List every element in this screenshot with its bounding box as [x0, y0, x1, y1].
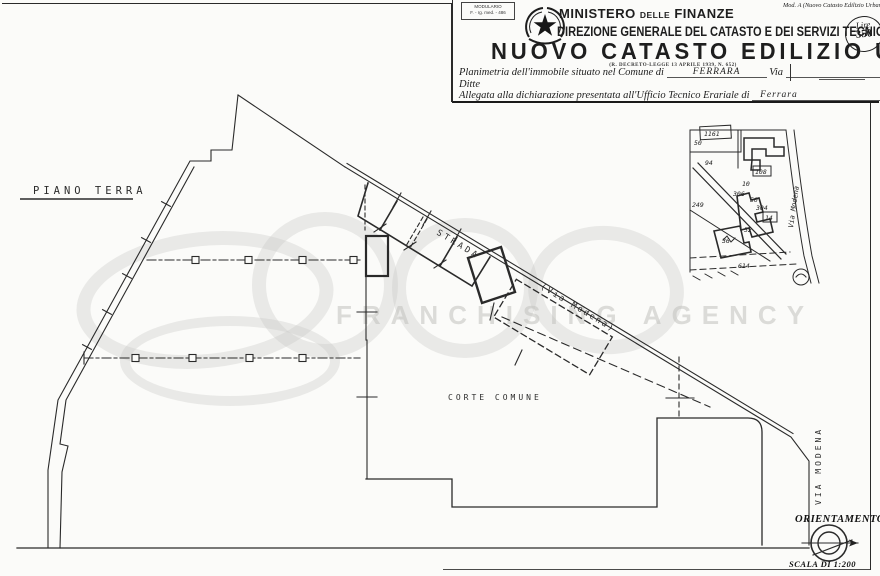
- cadastral-document-page: FRANCHISING AGENCY MODULARIO F. - rg. me…: [0, 0, 880, 576]
- road-edge-inner: [345, 167, 809, 545]
- compass-icon: [802, 525, 858, 561]
- parcel-number: 306: [732, 190, 745, 198]
- floor-label: PIANO TERRA: [33, 185, 147, 197]
- parcel-number: 304: [755, 204, 768, 212]
- central-building-column: [357, 185, 762, 545]
- parcel-number: 50: [750, 196, 758, 204]
- via-modena-vertical-label: VIA MODENA: [814, 427, 823, 505]
- fence-line-2: [84, 352, 360, 364]
- wall-ticks: [83, 202, 171, 350]
- parcel-top-boundary: [238, 95, 345, 167]
- inset-map: [690, 125, 819, 285]
- parcel-number: 14: [765, 214, 773, 222]
- parcel-number: 52: [744, 226, 752, 234]
- parcel-number: 249: [692, 201, 704, 209]
- orientamento-label: ORIENTAMENTO: [795, 514, 880, 525]
- fence-line-1: [147, 257, 363, 264]
- parcel-number: 614: [738, 262, 750, 270]
- parcel-number: 94: [705, 159, 713, 167]
- parcel-number: 10: [742, 180, 750, 188]
- building-solid-tick: [490, 303, 494, 320]
- parcel-number: 36: [721, 237, 730, 245]
- corte-comune-label: CORTE COMUNE: [448, 393, 542, 402]
- parcel-left-wall-outer: [48, 95, 238, 548]
- parcel-number: 1161: [704, 130, 720, 138]
- via-modena-road-label: (Via Modena): [538, 282, 616, 335]
- scala-label: SCALA DI 1:200: [789, 559, 856, 569]
- building-dashed-tick: [515, 350, 522, 365]
- road-buildings-band: [358, 183, 490, 286]
- parcel-number: 50: [694, 139, 702, 147]
- floor-plan-drawing: PIANO TERRA STRADA (Via Modena) CORTE CO…: [0, 0, 880, 576]
- parcel-number: 108: [755, 168, 767, 176]
